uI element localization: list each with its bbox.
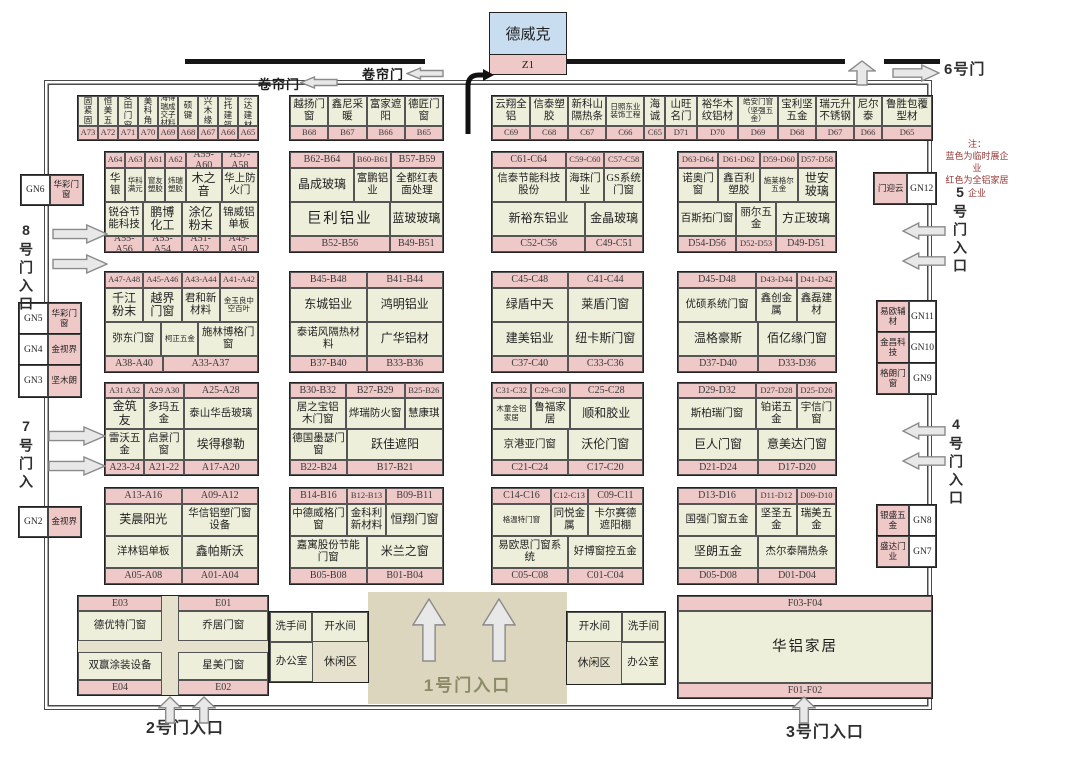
- booth-row: 双赢涂装设备星美门窗: [78, 652, 268, 680]
- booth-number: E03: [78, 596, 162, 611]
- booth-number: A49-A50: [220, 236, 258, 252]
- booth-name: 君和新材料: [182, 288, 220, 322]
- booth-number: D49-D51: [776, 236, 836, 252]
- booth-name: 烨瑞防火窗: [346, 398, 405, 429]
- booth-name: 办公室: [621, 642, 665, 684]
- strip-a: 窗固紧固件亚恒美五金麦田门窗希美科角码海得瑞成交子材料硕键兴木缘德托建筑熙达建材…: [78, 96, 258, 140]
- booth-name: 休闲区: [313, 642, 368, 682]
- booth-number: A13-A16: [105, 488, 182, 504]
- booth-number: B17-B21: [347, 460, 443, 475]
- booth-name: 锐谷节能科技: [105, 202, 143, 236]
- block-a1: A64A63A61A62A59-A60A57-A58华银华科满元窗友塑胶炜瑞塑胶…: [105, 152, 258, 252]
- booth-row: 洋林铝单板鑫帕斯沃: [105, 536, 258, 568]
- booth-name: 泰诺风隔热材料: [290, 322, 367, 356]
- booth-row: B68B67B66B65: [290, 126, 443, 140]
- gn-booth-gn12: 门迎云GN12: [873, 172, 937, 205]
- booth-number: A33-A37: [163, 356, 258, 372]
- booth-name: 炜瑞塑胶: [165, 168, 185, 202]
- booth-number: C25-C28: [570, 383, 644, 398]
- booth-number: C29-C30: [531, 383, 570, 398]
- gn-booth-gn4: GN4金视界: [18, 333, 82, 366]
- booth-row: 居之宝铝木门窗烨瑞防火窗慧康琪: [290, 398, 443, 429]
- services-left: 洗手间开水间办公室休闲区: [270, 612, 368, 682]
- booth-name: 格温特门窗: [492, 504, 551, 536]
- door-label: 7号门入: [16, 418, 36, 492]
- booth-row: 斯柏瑞门窗铂诺五金宇信门窗: [678, 398, 836, 429]
- booth-name: 兴木缘: [198, 96, 218, 126]
- booth-name: 鑫创金属: [756, 288, 797, 322]
- booth-number: B66: [367, 126, 405, 140]
- booth-row: 优硕系统门窗鑫创金属鑫磊建材: [678, 288, 836, 322]
- booth-row: 嘉寓股份节能门窗米兰之窗: [290, 536, 443, 568]
- booth-row: A38-A40A33-A37: [105, 356, 258, 372]
- block-e: E03E01德优特门窗乔居门窗双赢涂装设备星美门窗E04E02: [78, 596, 268, 695]
- booth-row: C45-C48C41-C44: [492, 272, 643, 288]
- booth-number: A38-A40: [105, 356, 163, 372]
- booth-row: D05-D08D01-D04: [678, 568, 836, 584]
- booth-row: A64A63A61A62A59-A60A57-A58: [105, 152, 258, 168]
- booth-name: 施林博格门窗: [198, 322, 258, 356]
- booth-number: B05-B08: [290, 568, 367, 584]
- booth-row: C21-C24C17-C20: [492, 460, 643, 475]
- gn-booth-gn3: GN3坚木朗: [18, 364, 82, 398]
- booth-number: A65: [238, 126, 258, 140]
- booth-number: D09-D10: [797, 488, 836, 504]
- booth-name: 斯柏瑞门窗: [678, 398, 756, 429]
- booth-row: 百斯拓门窗丽尔五金方正玻璃: [678, 202, 836, 236]
- booth-number: B37-B40: [290, 356, 367, 372]
- booth-row: B05-B08B01-B04: [290, 568, 443, 584]
- booth-name: 鑫尼采暖: [328, 96, 366, 126]
- booth-name: 鑫帕斯沃: [182, 536, 259, 568]
- block-d1: D63-D64D61-D62D59-D60D57-D58诺奥门窗鑫百利塑胶施莱格…: [678, 152, 836, 252]
- gn-booth-label: 华彩门窗: [48, 303, 81, 334]
- gn-booth-id: GN2: [19, 507, 48, 537]
- booth-row: 建美铝业纽卡斯门窗: [492, 322, 643, 356]
- booth-row: A55-A56A53-A54A51-A52A49-A50: [105, 236, 258, 252]
- booth-name: [162, 596, 178, 611]
- block-a3: A31 A32A29 A30A25-A28金筑友多玛五金泰山华岳玻璃雷沃五金启景…: [105, 383, 258, 475]
- booth-number: B01-B04: [367, 568, 444, 584]
- booth-name: 恒翔门窗: [386, 504, 443, 536]
- booth-row: C31-C32C29-C30C25-C28: [492, 383, 643, 398]
- booth-number: B30-B32: [290, 383, 346, 398]
- gn-booth-label: 易欧辅材: [877, 301, 909, 332]
- legend-note: 注： 蓝色为临时展企 业 红色为全铝家居 企业: [936, 138, 1018, 199]
- booth-row: B37-B40B33-B36: [290, 356, 443, 372]
- booth-name: 华银: [105, 168, 125, 202]
- booth-number: C12-C13: [551, 488, 588, 504]
- booth-name: 华铝家居: [678, 611, 932, 683]
- booth-name: 顺和胶业: [570, 398, 644, 429]
- booth-name: [162, 611, 178, 641]
- gn-booth-gn11: 易欧辅材GN11: [876, 300, 937, 333]
- booth-name: GS系统门窗: [604, 168, 643, 202]
- booth-number: C45-C48: [492, 272, 568, 288]
- booth-row: A13-A16A09-A12: [105, 488, 258, 504]
- booth-row: A05-A08A01-A04: [105, 568, 258, 584]
- booth-number: D37-D40: [678, 356, 758, 372]
- booth-number: D59-D60: [760, 152, 798, 168]
- booth-name: 鹏博化工: [143, 202, 181, 236]
- booth-name: 金科利新材料: [347, 504, 386, 536]
- block-a4: A13-A16A09-A12芙晨阳光华信铝塑门窗设备洋林铝单板鑫帕斯沃A05-A…: [105, 488, 258, 584]
- booth-name: 木之音: [186, 168, 222, 202]
- booth-number: A23-24: [105, 460, 144, 475]
- booth-row: 德国墨瑟门窗跃佳遮阳: [290, 429, 443, 460]
- booth-row: B30-B32B27-B29B25-B26: [290, 383, 443, 398]
- booth-number: C66: [606, 126, 644, 140]
- gn-booth-label: 金视界: [48, 507, 81, 537]
- booth-name: 信泰节能科技股份: [492, 168, 566, 202]
- entrance-booth-number: Z1: [490, 54, 566, 74]
- booth-name: 弥东门窗: [105, 322, 161, 356]
- booth-name: 鑫磊建材: [797, 288, 836, 322]
- booth-name: 巨人门窗: [678, 429, 758, 460]
- booth-name: 国强门窗五金: [678, 504, 756, 536]
- booth-name: 温格豪斯: [678, 322, 758, 356]
- booth-row: 越扬门窗鑫尼采暖富家遮阳德匠门窗: [290, 96, 443, 126]
- gn-booth-gn9: 格朗门窗GN9: [876, 362, 937, 395]
- booth-number: C14-C16: [492, 488, 551, 504]
- strip-cd: 云翔全铝信泰塑胶新科山隔热条日照东业装饰工程海诚山旺名门裕华木纹铝材皓安门窗（坚…: [492, 96, 932, 140]
- gn-booth-id: GN4: [19, 334, 48, 365]
- booth-name: 柯正五金: [161, 322, 198, 356]
- booth-row: 格温特门窗同悦金属卡尔赛德遮阳棚: [492, 504, 643, 536]
- booth-name: 同悦金属: [551, 504, 588, 536]
- booth-row: D54-D56D52-D53D49-D51: [678, 236, 836, 252]
- booth-name: 越扬门窗: [290, 96, 328, 126]
- booth-row: A73A72A71A70A69A68A67A66A65: [78, 126, 258, 140]
- booth-number: D27-D28: [756, 383, 797, 398]
- booth-number: A43-A44: [182, 272, 220, 288]
- booth-number: D61-D62: [718, 152, 760, 168]
- booth-name: 海得瑞成交子材料: [158, 96, 178, 126]
- booth-row: E03E01: [78, 596, 268, 611]
- booth-row: 泰诺风隔热材料广华铝材: [290, 322, 443, 356]
- booth-row: 易欧思门窗系统好博窗控五金: [492, 536, 643, 568]
- arrow-right-icon: [48, 426, 106, 446]
- services-right: 开水间洗手间休闲区办公室: [567, 612, 665, 684]
- booth-name: 建美铝业: [492, 322, 568, 356]
- booth-name: 休闲区: [567, 642, 621, 684]
- booth-row: 办公室休闲区: [270, 642, 368, 682]
- booth-number: B09-B11: [386, 488, 443, 504]
- booth-number: D65: [882, 126, 932, 140]
- booth-name: 海珠门业: [566, 168, 605, 202]
- booth-number: D01-D04: [758, 568, 836, 584]
- gate1-plaza: 1号门入口: [368, 592, 567, 704]
- booth-number: B22-B24: [290, 460, 347, 475]
- booth-number: A62: [165, 152, 185, 168]
- booth-number: C49-C51: [585, 236, 643, 252]
- booth-name: 鲁胜包覆型材: [882, 96, 932, 126]
- booth-name: 东城铝业: [290, 288, 367, 322]
- booth-row: C52-C56C49-C51: [492, 236, 643, 252]
- booth-name: 丽尔五金: [736, 202, 776, 236]
- booth-row: F03-F04: [678, 596, 932, 611]
- booth-name: 云翔全铝: [492, 96, 530, 126]
- booth-row: C14-C16C12-C13C09-C11: [492, 488, 643, 504]
- booth-number: A68: [178, 126, 198, 140]
- gn-booth-gn7: 盛达门业GN7: [876, 535, 937, 568]
- gn-booth-label: 金昌科技: [877, 332, 909, 363]
- booth-name: 芙晨阳光: [105, 504, 182, 536]
- arrow-left-icon: [406, 67, 444, 80]
- entry-flow-arrow-icon: [458, 66, 496, 138]
- booth-row: D45-D48D43-D44D41-D42: [678, 272, 836, 288]
- booth-number: D54-D56: [678, 236, 736, 252]
- booth-name: 涂亿粉末: [182, 202, 220, 236]
- booth-name: 鑫百利塑胶: [718, 168, 760, 202]
- booth-number: B60-B61: [354, 152, 391, 168]
- booth-name: 沃伦门窗: [568, 429, 644, 460]
- booth-number: C59-C60: [566, 152, 605, 168]
- booth-name: 尼尔泰: [854, 96, 882, 126]
- booth-name: 千江粉末: [105, 288, 143, 322]
- block-c4: C14-C16C12-C13C09-C11格温特门窗同悦金属卡尔赛德遮阳棚易欧思…: [492, 488, 643, 584]
- booth-name: 莱盾门窗: [568, 288, 644, 322]
- booth-row: 锐谷节能科技鹏博化工涂亿粉末锦威铝单板: [105, 202, 258, 236]
- booth-number: A29 A30: [144, 383, 183, 398]
- booth-number: E01: [178, 596, 268, 611]
- arrow-right-icon: [48, 456, 106, 476]
- booth-number: D66: [854, 126, 882, 140]
- booth-name: 蓝玻玻璃: [390, 202, 443, 236]
- booth-number: A70: [138, 126, 158, 140]
- booth-name: [162, 652, 178, 680]
- booth-row: D13-D16D11-D12D09-D10: [678, 488, 836, 504]
- booth-number: D52-D53: [736, 236, 776, 252]
- arrow-up-icon: [158, 696, 182, 724]
- booth-name: 德匠门窗: [405, 96, 443, 126]
- shutter-door-label: 卷帘门: [258, 74, 300, 93]
- booth-number: C41-C44: [568, 272, 644, 288]
- entrance-booth-z1: 德威克 Z1: [489, 12, 567, 75]
- booth-number: C52-C56: [492, 236, 585, 252]
- block-b4: B14-B16B12-B13B09-B11中德威格门窗金科利新材料恒翔门窗嘉寓股…: [290, 488, 443, 584]
- booth-number: C01-C04: [568, 568, 644, 584]
- booth-number: A55-A56: [105, 236, 143, 252]
- booth-row: 国强门窗五金坚圣五金瑞美五金: [678, 504, 836, 536]
- gn-booth-id: GN11: [909, 301, 936, 332]
- booth-row: 金筑友多玛五金泰山华岳玻璃: [105, 398, 258, 429]
- gn-booth-label: 格朗门窗: [877, 363, 909, 394]
- booth-row: C37-C40C33-C36: [492, 356, 643, 372]
- arrow-left-icon: [300, 76, 338, 89]
- booth-name: 巨利铝业: [290, 202, 390, 236]
- booth-number: D41-D42: [797, 272, 836, 288]
- booth-number: B62-B64: [290, 152, 354, 168]
- booth-row: 洗手间开水间: [270, 612, 368, 642]
- booth-row: 巨人门窗意美达门窗: [678, 429, 836, 460]
- booth-number: E02: [178, 680, 268, 695]
- booth-row: 开水间洗手间: [567, 612, 665, 642]
- booth-row: C05-C08C01-C04: [492, 568, 643, 584]
- block-f: F03-F04华铝家居F01-F02: [678, 596, 932, 698]
- booth-name: 宇信门窗: [797, 398, 836, 429]
- booth-number: B25-B26: [405, 383, 443, 398]
- booth-number: C68: [530, 126, 568, 140]
- gn-booth-gn8: 银盛五金GN8: [876, 504, 937, 537]
- arrow-left-icon: [902, 222, 946, 240]
- booth-number: C05-C08: [492, 568, 568, 584]
- booth-name: 居之宝铝木门窗: [290, 398, 346, 429]
- booth-row: B22-B24B17-B21: [290, 460, 443, 475]
- booth-name: 卡尔赛德遮阳棚: [588, 504, 643, 536]
- booth-row: A31 A32A29 A30A25-A28: [105, 383, 258, 398]
- booth-number: D25-D26: [797, 383, 836, 398]
- booth-name: 亚恒美五金: [98, 96, 118, 126]
- booth-name: 乔居门窗: [178, 611, 268, 641]
- booth-number: B33-B36: [367, 356, 444, 372]
- booth-number: C09-C11: [588, 488, 643, 504]
- arrow-up-icon: [848, 60, 876, 86]
- booth-number: D68: [778, 126, 816, 140]
- booth-number: A71: [118, 126, 138, 140]
- booth-row: 千江粉末越界门窗君和新材料金玉良中空百叶: [105, 288, 258, 322]
- door-label: 6号门: [944, 58, 985, 79]
- block-b3: B30-B32B27-B29B25-B26居之宝铝木门窗烨瑞防火窗慧康琪德国墨瑟…: [290, 383, 443, 475]
- booth-name: 鸿明铝业: [367, 288, 444, 322]
- booth-number: A66: [218, 126, 238, 140]
- booth-name: 坚圣五金: [756, 504, 797, 536]
- booth-name: 杰尔泰隔热条: [758, 536, 836, 568]
- booth-name: 坚朗五金: [678, 536, 758, 568]
- booth-name: 方正玻璃: [776, 202, 836, 236]
- booth-number: C69: [492, 126, 530, 140]
- arrow-up-icon: [482, 598, 516, 662]
- booth-name: [78, 641, 268, 652]
- block-d3: D29-D32D27-D28D25-D26斯柏瑞门窗铂诺五金宇信门窗巨人门窗意美…: [678, 383, 836, 475]
- gn-booth-label: 门迎云: [874, 173, 907, 204]
- booth-name: 埃得穆勒: [184, 429, 259, 460]
- block-d4: D13-D16D11-D12D09-D10国强门窗五金坚圣五金瑞美五金坚朗五金杰…: [678, 488, 836, 584]
- booth-row: 中德威格门窗金科利新材料恒翔门窗: [290, 504, 443, 536]
- booth-number: B52-B56: [290, 236, 390, 252]
- booth-number: C37-C40: [492, 356, 568, 372]
- booth-name: 华科满元: [125, 168, 145, 202]
- booth-name: 中德威格门窗: [290, 504, 347, 536]
- booth-number: B41-B44: [367, 272, 444, 288]
- booth-row: 弥东门窗柯正五金施林博格门窗: [105, 322, 258, 356]
- booth-name: 纽卡斯门窗: [568, 322, 644, 356]
- booth-name: 山旺名门: [665, 96, 696, 126]
- booth-number: C31-C32: [492, 383, 531, 398]
- arrow-right-icon: [52, 254, 108, 274]
- booth-name: 金筑友: [105, 398, 144, 429]
- booth-number: A73: [78, 126, 98, 140]
- booth-name: 越界门窗: [143, 288, 181, 322]
- arrow-left-icon: [902, 422, 946, 440]
- booth-number: A59-A60: [186, 152, 222, 168]
- block-b1: B62-B64B60-B61B57-B59晶成玻璃富鹏铝业全都红表面处理巨利铝业…: [290, 152, 443, 252]
- booth-number: D29-D32: [678, 383, 756, 398]
- booth-number: A72: [98, 126, 118, 140]
- booth-row: 雷沃五金启景门窗埃得穆勒: [105, 429, 258, 460]
- booth-row: 芙晨阳光华信铝塑门窗设备: [105, 504, 258, 536]
- block-c1: C61-C64C59-C60C57-C58信泰节能科技股份海珠门业GS系统门窗新…: [492, 152, 643, 252]
- gn-booth-label: 华彩门窗: [50, 175, 83, 205]
- booth-number: D21-D24: [678, 460, 758, 475]
- booth-number: A57-A58: [222, 152, 258, 168]
- booth-number: A69: [158, 126, 178, 140]
- gn-booth-label: 金视界: [48, 334, 81, 365]
- top-wall-segment: [565, 59, 845, 64]
- booth-number: D33-D36: [758, 356, 836, 372]
- booth-name: 易欧思门窗系统: [492, 536, 568, 568]
- booth-name: 熙达建材: [238, 96, 258, 126]
- door-label: 8号门入口: [16, 222, 36, 314]
- booth-name: 泰山华岳玻璃: [184, 398, 259, 429]
- booth-number: A53-A54: [143, 236, 181, 252]
- booth-name: 富家遮阳: [367, 96, 405, 126]
- block-a2: A47-A48A45-A46A43-A44A41-A42千江粉末越界门窗君和新材…: [105, 272, 258, 372]
- booth-row: 温格豪斯佰亿缘门窗: [678, 322, 836, 356]
- booth-name: 百斯拓门窗: [678, 202, 736, 236]
- booth-name: 全都红表面处理: [391, 168, 443, 202]
- booth-name: 双赢涂装设备: [78, 652, 162, 680]
- booth-name: 麦田门窗: [118, 96, 138, 126]
- booth-number: A41-A42: [220, 272, 258, 288]
- booth-row: D37-D40D33-D36: [678, 356, 836, 372]
- booth-row: B52-B56B49-B51: [290, 236, 443, 252]
- arrow-right-icon: [892, 64, 940, 82]
- booth-number: C33-C36: [568, 356, 644, 372]
- booth-name: 洗手间: [622, 612, 665, 642]
- booth-name: 锦威铝单板: [220, 202, 258, 236]
- booth-number: A09-A12: [182, 488, 259, 504]
- door-label: 4号门入口: [946, 416, 966, 508]
- booth-name: 好博窗控五金: [568, 536, 644, 568]
- shutter-door-label: 卷帘门: [362, 64, 404, 83]
- booth-number: A47-A48: [105, 272, 143, 288]
- booth-name: 办公室: [270, 642, 313, 682]
- exhibition-floor-plan: 德威克 Z1 1号门入口 注： 蓝色为临时展企 业 红色为全铝家居 企业 窗固紧…: [0, 0, 1080, 764]
- booth-number: E04: [78, 680, 162, 695]
- booth-number: B14-B16: [290, 488, 347, 504]
- booth-name: 德国墨瑟门窗: [290, 429, 347, 460]
- gn-booth-label: 银盛五金: [877, 505, 909, 536]
- gn-booth-label: 坚木朗: [48, 365, 81, 397]
- booth-number: B65: [405, 126, 443, 140]
- strip-b: 越扬门窗鑫尼采暖富家遮阳德匠门窗B68B67B66B65: [290, 96, 443, 140]
- gn-booth-id: GN10: [909, 332, 936, 363]
- booth-name: 瑞美五金: [797, 504, 836, 536]
- arrow-left-icon: [902, 452, 946, 470]
- booth-number: A67: [198, 126, 218, 140]
- booth-name: [162, 680, 178, 695]
- booth-number: B57-B59: [391, 152, 443, 168]
- booth-name: 华上防火门: [222, 168, 258, 202]
- booth-number: B27-B29: [346, 383, 405, 398]
- gn-booth-id: GN9: [909, 363, 936, 394]
- booth-name: 硕键: [178, 96, 198, 126]
- booth-number: C65: [644, 126, 665, 140]
- booth-row: 京港亚门窗沃伦门窗: [492, 429, 643, 460]
- booth-number: B12-B13: [347, 488, 386, 504]
- booth-row: 巨利铝业蓝玻玻璃: [290, 202, 443, 236]
- booth-row: [78, 641, 268, 652]
- booth-number: D70: [697, 126, 739, 140]
- booth-name: 世安玻璃: [798, 168, 836, 202]
- booth-name: 木童全铝家居: [492, 398, 531, 429]
- booth-row: B14-B16B12-B13B09-B11: [290, 488, 443, 504]
- booth-name: 日照东业装饰工程: [606, 96, 644, 126]
- booth-number: A45-A46: [143, 272, 181, 288]
- booth-number: B49-B51: [390, 236, 443, 252]
- booth-name: 洋林铝单板: [105, 536, 182, 568]
